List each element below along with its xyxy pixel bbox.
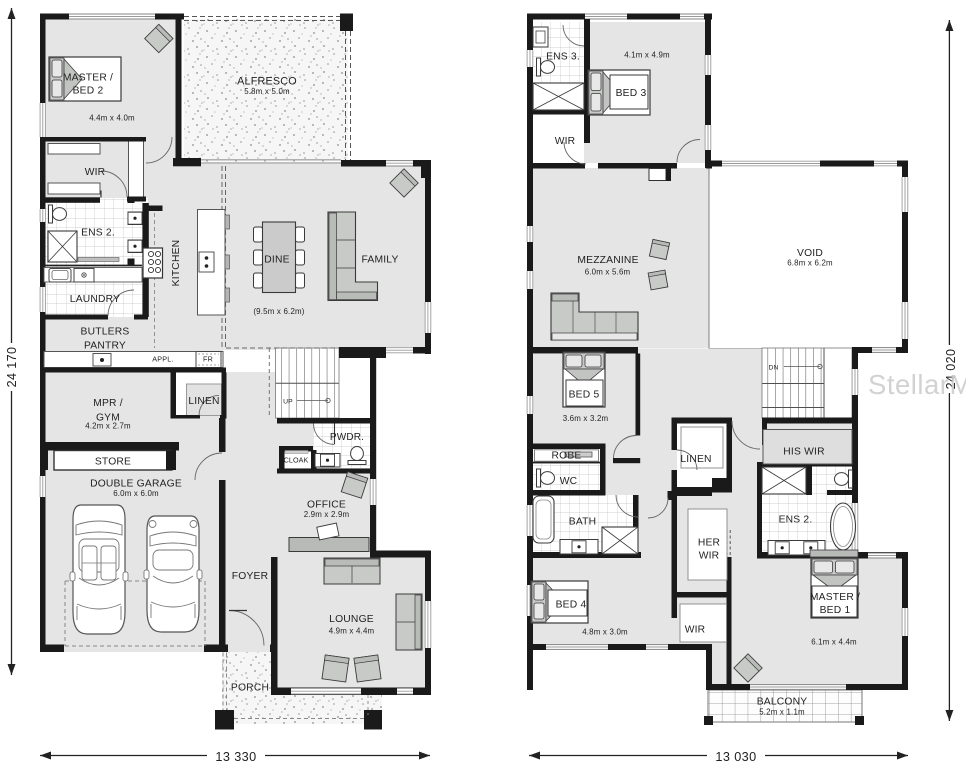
svg-text:WC: WC <box>560 476 578 487</box>
svg-text:WIR: WIR <box>555 136 576 147</box>
svg-text:BED 5: BED 5 <box>569 390 600 401</box>
svg-text:4.1m x 4.9m: 4.1m x 4.9m <box>624 51 670 60</box>
svg-text:FR: FR <box>203 355 213 364</box>
svg-text:BED 2: BED 2 <box>73 86 104 97</box>
svg-text:STORE: STORE <box>95 457 131 468</box>
svg-text:StellarMLS: StellarMLS <box>868 369 966 400</box>
svg-text:CLOAK: CLOAK <box>284 456 309 465</box>
svg-text:LINEN: LINEN <box>188 396 219 407</box>
svg-text:ENS 2.: ENS 2. <box>779 515 813 526</box>
svg-text:13 330: 13 330 <box>215 750 256 764</box>
svg-text:(9.5m x 6.2m): (9.5m x 6.2m) <box>253 307 304 316</box>
svg-text:4.4m x 4.0m: 4.4m x 4.0m <box>89 114 135 123</box>
svg-text:24 170: 24 170 <box>5 347 19 388</box>
svg-text:UP: UP <box>283 399 293 406</box>
svg-text:DINE: DINE <box>264 255 289 266</box>
svg-text:DOUBLE GARAGE: DOUBLE GARAGE <box>90 479 182 490</box>
svg-text:4.9m x 4.4m: 4.9m x 4.4m <box>329 627 375 636</box>
svg-text:OFFICE: OFFICE <box>307 500 346 511</box>
svg-text:6.0m x 6.0m: 6.0m x 6.0m <box>113 489 159 498</box>
svg-text:KITCHEN: KITCHEN <box>171 240 182 287</box>
svg-text:LAUNDRY: LAUNDRY <box>70 294 120 305</box>
svg-text:4.2m x 2.7m: 4.2m x 2.7m <box>85 422 131 431</box>
svg-text:ALFRESCO: ALFRESCO <box>237 76 297 88</box>
svg-text:FAMILY: FAMILY <box>361 255 398 266</box>
svg-text:13 030: 13 030 <box>715 750 756 764</box>
svg-text:MEZZANINE: MEZZANINE <box>577 255 638 266</box>
svg-text:BED 4: BED 4 <box>556 600 587 611</box>
svg-text:BED 3: BED 3 <box>616 88 647 99</box>
svg-text:PORCH: PORCH <box>231 683 269 694</box>
svg-text:BUTLERS: BUTLERS <box>81 327 130 338</box>
svg-text:LOUNGE: LOUNGE <box>329 614 374 625</box>
svg-text:5.2m x 1.1m: 5.2m x 1.1m <box>759 708 805 717</box>
svg-text:VOID: VOID <box>797 248 823 259</box>
svg-text:FOYER: FOYER <box>232 571 268 582</box>
svg-text:HER: HER <box>698 538 720 549</box>
svg-text:PANTRY: PANTRY <box>84 341 126 352</box>
svg-text:3.6m x 3.2m: 3.6m x 3.2m <box>563 414 609 423</box>
svg-text:ENS 3.: ENS 3. <box>546 52 580 63</box>
svg-text:PWDR.: PWDR. <box>330 432 364 443</box>
svg-text:6.0m x 5.6m: 6.0m x 5.6m <box>585 268 631 277</box>
svg-text:4.8m x 3.0m: 4.8m x 3.0m <box>582 628 628 637</box>
svg-text:5.8m x 5.0m: 5.8m x 5.0m <box>244 87 290 96</box>
svg-text:BED 1: BED 1 <box>820 605 851 616</box>
svg-text:BALCONY: BALCONY <box>757 697 808 708</box>
svg-text:LINEN: LINEN <box>680 454 711 465</box>
svg-text:WIR: WIR <box>685 625 706 636</box>
svg-text:6.8m x 6.2m: 6.8m x 6.2m <box>787 259 833 268</box>
svg-text:BATH: BATH <box>569 517 597 528</box>
svg-text:ROBE: ROBE <box>552 451 582 462</box>
svg-text:2.9m x 2.9m: 2.9m x 2.9m <box>304 510 350 519</box>
svg-text:MASTER /: MASTER / <box>63 73 113 84</box>
svg-text:6.1m x 4.4m: 6.1m x 4.4m <box>811 638 857 647</box>
svg-text:ENS 2.: ENS 2. <box>81 228 115 239</box>
svg-text:MPR /: MPR / <box>93 398 123 409</box>
svg-text:WIR: WIR <box>85 167 106 178</box>
svg-text:APPL.: APPL. <box>152 355 173 364</box>
svg-text:HIS WIR: HIS WIR <box>783 447 824 458</box>
svg-text:WIR: WIR <box>699 551 720 562</box>
svg-text:DN: DN <box>768 365 778 372</box>
svg-text:MASTER /: MASTER / <box>810 592 860 603</box>
